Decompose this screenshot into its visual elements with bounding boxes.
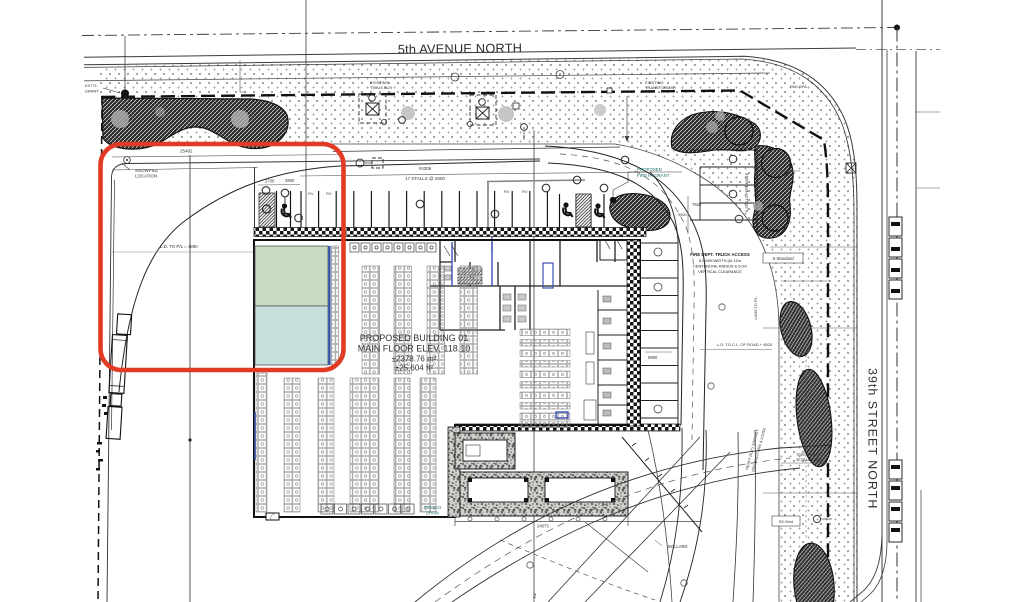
svg-text:CENTERLINE RADIUS & 5.0m: CENTERLINE RADIUS & 5.0m (693, 264, 747, 269)
svg-text:±2378.76 m²: ±2378.76 m² (392, 355, 437, 364)
svg-text:±25,604 ft²: ±25,604 ft² (395, 364, 434, 373)
svg-text:FIRE HYDRANT: FIRE HYDRANT (637, 173, 670, 178)
svg-text:VERTICAL CLEARANCE: VERTICAL CLEARANCE (698, 269, 742, 274)
svg-text:TREE FRONT: TREE FRONT (796, 453, 820, 457)
svg-text:L.D. TO C.L. OF ROAD + 4503: L.D. TO C.L. OF ROAD + 4503 (717, 342, 773, 347)
svg-text:RV: RV (326, 191, 332, 196)
svg-text:PROPOSED BUILDING 01: PROPOSED BUILDING 01 (360, 333, 469, 343)
svg-text:RV: RV (308, 191, 314, 196)
svg-text:RV: RV (504, 189, 510, 194)
svg-text:5800: 5800 (648, 355, 658, 360)
svg-text:9000: 9000 (678, 213, 686, 217)
svg-text:EXT'G: EXT'G (85, 83, 97, 88)
svg-text:±1646 TO P/L: ±1646 TO P/L (754, 297, 758, 320)
svg-text:L.D. TO P/L = 4890: L.D. TO P/L = 4890 (160, 244, 198, 249)
svg-text:SETBACK LINE: SETBACK LINE (796, 458, 822, 462)
svg-text:TRANSFORMER: TRANSFORMER (645, 85, 676, 90)
svg-text:8-STALLS PERMEABLE: 8-STALLS PERMEABLE (745, 172, 749, 212)
svg-text:MAIN FLOOR ELEV. 118.10: MAIN FLOOR ELEV. 118.10 (358, 344, 471, 354)
svg-text:39th STREET NORTH: 39th STREET NORTH (866, 368, 880, 509)
svg-text:TRENCH: TRENCH (424, 505, 441, 510)
svg-text:17 STALLS @ 2600: 17 STALLS @ 2600 (405, 176, 445, 181)
svg-text:DRAIN: DRAIN (426, 511, 439, 516)
svg-text:SNOWPILE: SNOWPILE (135, 168, 158, 173)
svg-text:24073: 24073 (537, 524, 549, 529)
svg-text:PAD SPA: PAD SPA (790, 84, 807, 89)
svg-text:2700: 2700 (265, 179, 275, 184)
svg-text:LOCATION: LOCATION (135, 174, 157, 179)
svg-text:BOLLARD: BOLLARD (668, 544, 688, 549)
svg-text:TELUS BOX: TELUS BOX (370, 85, 393, 90)
svg-text:FIRE DEPT. TRUCK ACCESS: FIRE DEPT. TRUCK ACCESS (690, 252, 750, 257)
svg-text:PROPOSED: PROPOSED (637, 167, 662, 172)
svg-text:2800: 2800 (285, 178, 295, 183)
svg-text:S5-Stnd: S5-Stnd (779, 519, 793, 524)
svg-text:RV: RV (522, 189, 528, 194)
svg-text:7620: 7620 (692, 202, 702, 207)
svg-text:6.0 MIN WIDTH (At 12m: 6.0 MIN WIDTH (At 12m (699, 258, 741, 263)
svg-text:#4306: #4306 (419, 166, 432, 171)
svg-text:DRANT: DRANT (85, 89, 99, 94)
svg-text:5th AVENUE NORTH: 5th AVENUE NORTH (398, 40, 523, 56)
svg-text:25482: 25482 (180, 149, 193, 154)
svg-text:S-Standard: S-Standard (772, 256, 794, 261)
